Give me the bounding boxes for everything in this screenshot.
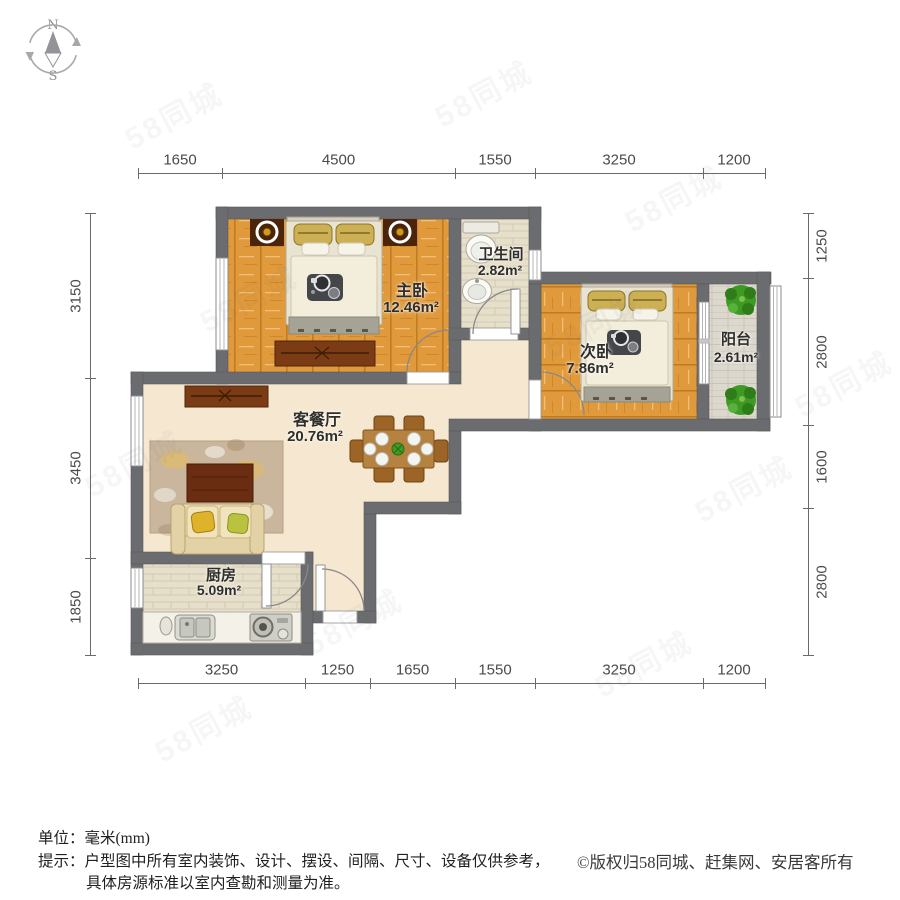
master-tv-cabinet [275, 341, 375, 366]
living-tv-cabinet [185, 386, 268, 407]
dim-tick [703, 168, 704, 179]
dim-line-left [90, 213, 91, 655]
kitchen-sink-icon [175, 615, 215, 640]
dim-label-top-4: 1200 [717, 152, 750, 169]
pillow [588, 291, 625, 311]
second-bedroom-furniture [581, 284, 673, 402]
dim-tick [803, 425, 814, 426]
balcony-area: 2.61m² [714, 350, 758, 365]
entry-door-opening [323, 611, 357, 623]
dim-tick [138, 678, 139, 689]
dim-label-right-2: 1600 [814, 450, 831, 483]
balcony-slider-window [699, 302, 709, 384]
dim-tick [455, 168, 456, 179]
master-bed [286, 217, 382, 334]
dim-label-top-0: 1650 [163, 152, 196, 169]
tip-line-1: 提示：户型图中所有室内装饰、设计、摆设、间隔、尺寸、设备仅供参考， [38, 849, 550, 871]
pillow [294, 224, 332, 245]
second-bedroom-door-opening [529, 380, 541, 419]
dim-tick [803, 508, 814, 509]
tip-line-2: 具体房源标准以室内查勘和测量为准。 [86, 871, 350, 893]
dim-tick [85, 655, 96, 656]
unit-note: 单位：毫米(mm) [38, 826, 150, 848]
dim-label-left-2: 1850 [68, 590, 85, 623]
dim-label-left-0: 3150 [68, 279, 85, 312]
dining-chair [350, 440, 364, 462]
dim-tick [803, 655, 814, 656]
kitchen-window [131, 568, 143, 608]
pillow-yellow [191, 511, 216, 534]
coffee-table [187, 464, 253, 502]
kitchen-door-opening [262, 552, 305, 564]
pillow-green [227, 513, 249, 534]
dim-tick [85, 213, 96, 214]
entry-door-leaf [316, 565, 325, 611]
dim-tick [370, 678, 371, 689]
dim-label-top-3: 3250 [602, 152, 635, 169]
second-room-name: 次卧 [580, 344, 612, 362]
kitchen-area: 5.09m² [197, 583, 241, 598]
dim-label-top-2: 1550 [478, 152, 511, 169]
dim-line-right [808, 213, 809, 655]
dim-label-right-1: 2800 [814, 335, 831, 368]
plant-icon [725, 385, 756, 415]
kitchen-door-leaf [262, 564, 271, 608]
plant-icon [725, 285, 756, 315]
living-window [131, 396, 143, 466]
balcony-name: 阳台 [721, 332, 751, 349]
living-room-area: 20.76m² [287, 429, 343, 446]
second-bed [581, 284, 673, 402]
dim-tick [305, 678, 306, 689]
dim-label-bottom-3: 1550 [478, 662, 511, 679]
dim-label-bottom-1: 1250 [321, 662, 354, 679]
hallway-floor [461, 340, 529, 419]
living-room-name: 客餐厅 [293, 412, 341, 430]
dim-tick [85, 558, 96, 559]
balcony-railing [770, 286, 781, 417]
sink-icon [463, 279, 492, 304]
stove-icon [250, 614, 292, 641]
dim-label-top-1: 4500 [322, 152, 355, 169]
bathroom-area: 2.82m² [478, 263, 522, 278]
copyright-note: ©版权归58同城、赶集网、安居客所有 [577, 849, 854, 873]
dim-tick [535, 168, 536, 179]
dim-label-bottom-4: 3250 [602, 662, 635, 679]
dining-chair [434, 440, 448, 462]
master-room-name: 主卧 [396, 283, 428, 301]
dim-label-left-1: 3450 [68, 451, 85, 484]
dim-tick [703, 678, 704, 689]
dim-tick [138, 168, 139, 179]
dim-tick [535, 678, 536, 689]
dim-label-bottom-5: 1200 [717, 662, 750, 679]
dim-line-bottom [138, 683, 765, 684]
master-door-opening [407, 372, 449, 384]
sofa [171, 504, 264, 554]
kitchen-fixtures [143, 612, 301, 643]
floorplan-drawing [0, 0, 900, 900]
dim-label-bottom-2: 1650 [396, 662, 429, 679]
pillow [336, 224, 374, 245]
dim-label-right-0: 1250 [814, 229, 831, 262]
bathroom-window [529, 250, 541, 280]
dim-tick [765, 168, 766, 179]
pillow [629, 291, 666, 311]
dim-tick [85, 378, 96, 379]
dim-tick [765, 678, 766, 689]
master-room-area: 12.46m² [383, 300, 439, 317]
second-room-area: 7.86m² [566, 361, 614, 378]
dim-tick [803, 213, 814, 214]
dim-label-bottom-0: 3250 [205, 662, 238, 679]
dim-line-top [138, 173, 765, 174]
dim-label-right-3: 2800 [814, 565, 831, 598]
dim-tick [803, 278, 814, 279]
dim-tick [455, 678, 456, 689]
dim-tick [222, 168, 223, 179]
master-window [216, 258, 228, 350]
floorplan-page: N S [0, 0, 900, 900]
bathroom-door-leaf [511, 289, 520, 334]
